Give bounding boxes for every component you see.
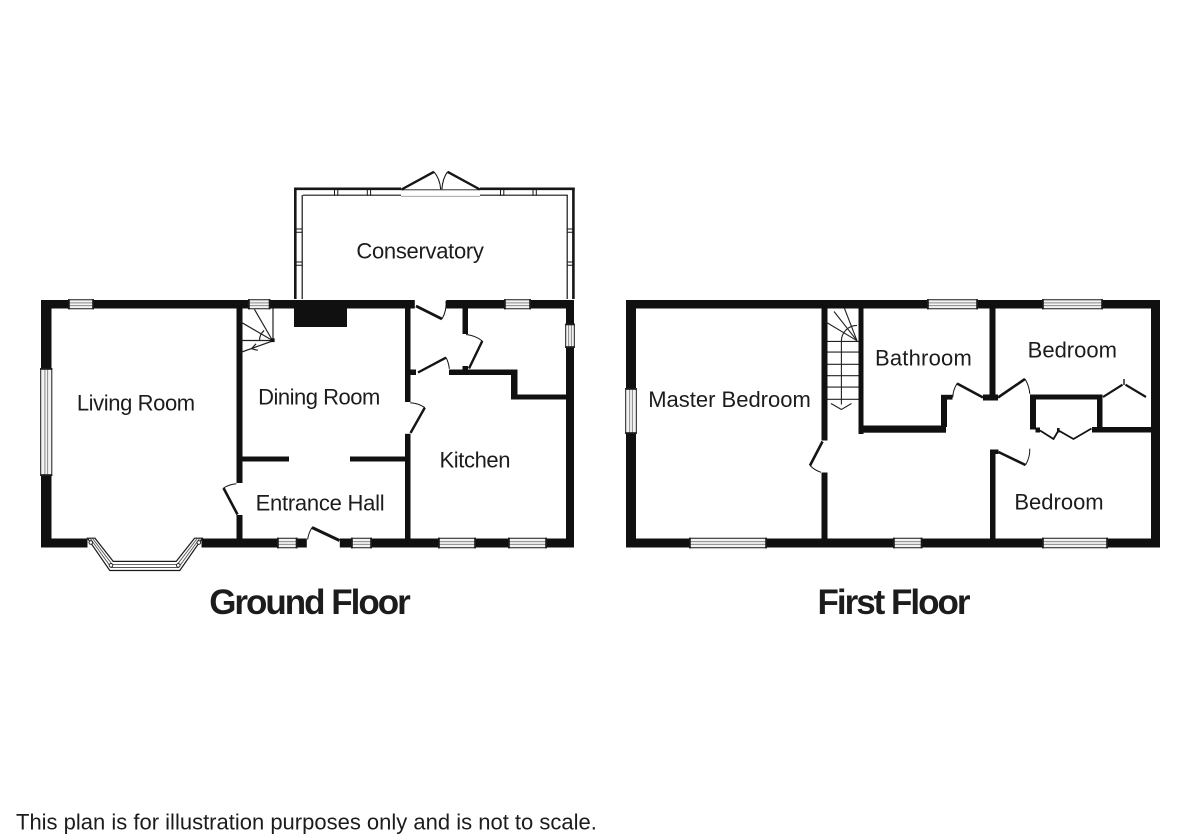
svg-text:Dining Room: Dining Room bbox=[258, 385, 380, 410]
svg-text:Bathroom: Bathroom bbox=[875, 346, 972, 371]
svg-text:Entrance Hall: Entrance Hall bbox=[256, 491, 385, 516]
svg-text:First Floor: First Floor bbox=[817, 583, 970, 622]
svg-text:Ground Floor: Ground Floor bbox=[209, 583, 411, 622]
svg-text:This plan is for illustration: This plan is for illustration purposes o… bbox=[16, 810, 597, 835]
svg-text:Living Room: Living Room bbox=[77, 391, 195, 416]
svg-text:Bedroom: Bedroom bbox=[1028, 338, 1117, 363]
svg-text:Kitchen: Kitchen bbox=[440, 448, 511, 473]
svg-text:Master Bedroom: Master Bedroom bbox=[648, 387, 811, 412]
svg-text:Conservatory: Conservatory bbox=[356, 239, 484, 264]
svg-text:Bedroom: Bedroom bbox=[1014, 489, 1103, 514]
